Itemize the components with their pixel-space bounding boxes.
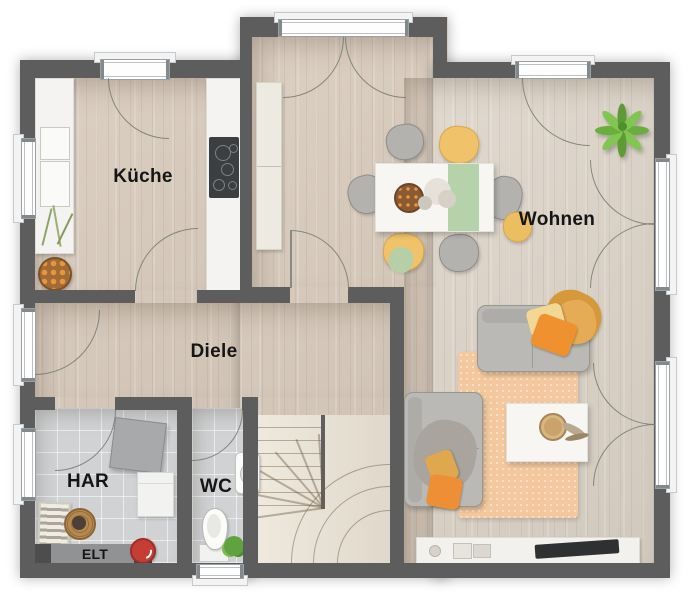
wall-kitchen-right [240, 17, 252, 303]
wardrobe-seam [257, 166, 281, 167]
sideboard [416, 537, 640, 564]
french-door-lower [655, 361, 670, 489]
kitchen-counter-left [35, 78, 74, 254]
french-door-upper [655, 158, 670, 291]
washing-machine [109, 417, 167, 474]
window-kitchen-top [100, 59, 170, 80]
palm-center [618, 122, 627, 131]
window-kitchen-left [21, 138, 36, 219]
decor-books [473, 544, 491, 558]
dryer-seam [138, 483, 173, 484]
stairs [258, 415, 390, 563]
wall-bottom [20, 563, 670, 578]
room-label-elt: ELT [82, 546, 108, 562]
burner [221, 163, 234, 176]
basket-contents [72, 516, 86, 530]
window-wc-bottom [196, 564, 244, 579]
pillow-orange [425, 473, 463, 510]
terrace-door-top [515, 61, 591, 79]
wall-right [654, 62, 670, 578]
decor-flowers [418, 196, 432, 210]
wall-har-wc-divider [177, 397, 192, 563]
laundry-basket [64, 508, 96, 540]
fridge-compartment [40, 127, 70, 160]
dried-plant [565, 432, 590, 443]
room-label-wohnen: Wohnen [519, 209, 595, 231]
decor-flowers [438, 190, 456, 208]
vacuum-swirl [134, 541, 154, 561]
vacuum-robot [130, 538, 156, 564]
elt-end-block [33, 544, 51, 563]
hall-diele-door-leaf [290, 230, 292, 288]
fruit-basket [38, 257, 72, 291]
burner [213, 179, 225, 191]
floor-plan: Küche Wohnen Diele HAR WC ELT [0, 0, 688, 600]
decor-books [453, 543, 472, 559]
wardrobe-cabinet [256, 82, 282, 250]
side-entry-door [21, 308, 36, 382]
room-label-wc: WC [200, 476, 232, 498]
wall-kitchen-bottom-left [20, 290, 135, 303]
wall-diele-wohnen [390, 287, 404, 563]
coffee-table [506, 403, 588, 462]
decor-vase [429, 545, 441, 557]
window-har-left [21, 428, 36, 501]
stair-treads [258, 415, 324, 507]
fridge-compartment [40, 161, 70, 207]
burner [228, 181, 237, 190]
cooktop [209, 137, 239, 198]
tv-flat [535, 539, 620, 559]
toilet-seat [207, 514, 221, 538]
front-door [278, 19, 409, 37]
palm-plant [594, 98, 650, 154]
wall-entrance-right [433, 17, 447, 78]
room-label-har: HAR [67, 471, 109, 493]
wc-plant [224, 536, 244, 556]
dining-table [375, 163, 494, 232]
burner [229, 144, 238, 153]
room-label-kueche: Küche [113, 166, 173, 188]
room-label-diele: Diele [191, 341, 238, 363]
dryer [137, 472, 174, 517]
wall-wc-right [243, 397, 258, 563]
